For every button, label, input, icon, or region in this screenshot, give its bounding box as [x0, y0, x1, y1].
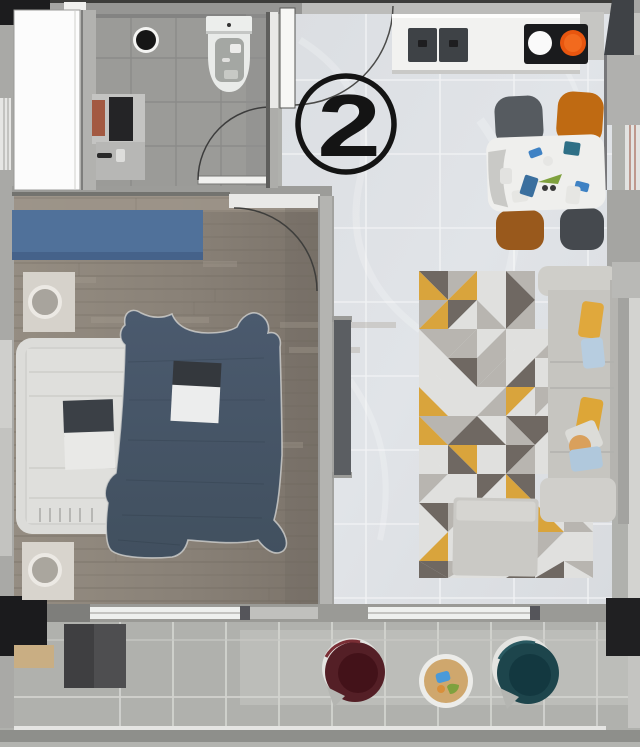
svg-text:2: 2 — [317, 77, 381, 175]
